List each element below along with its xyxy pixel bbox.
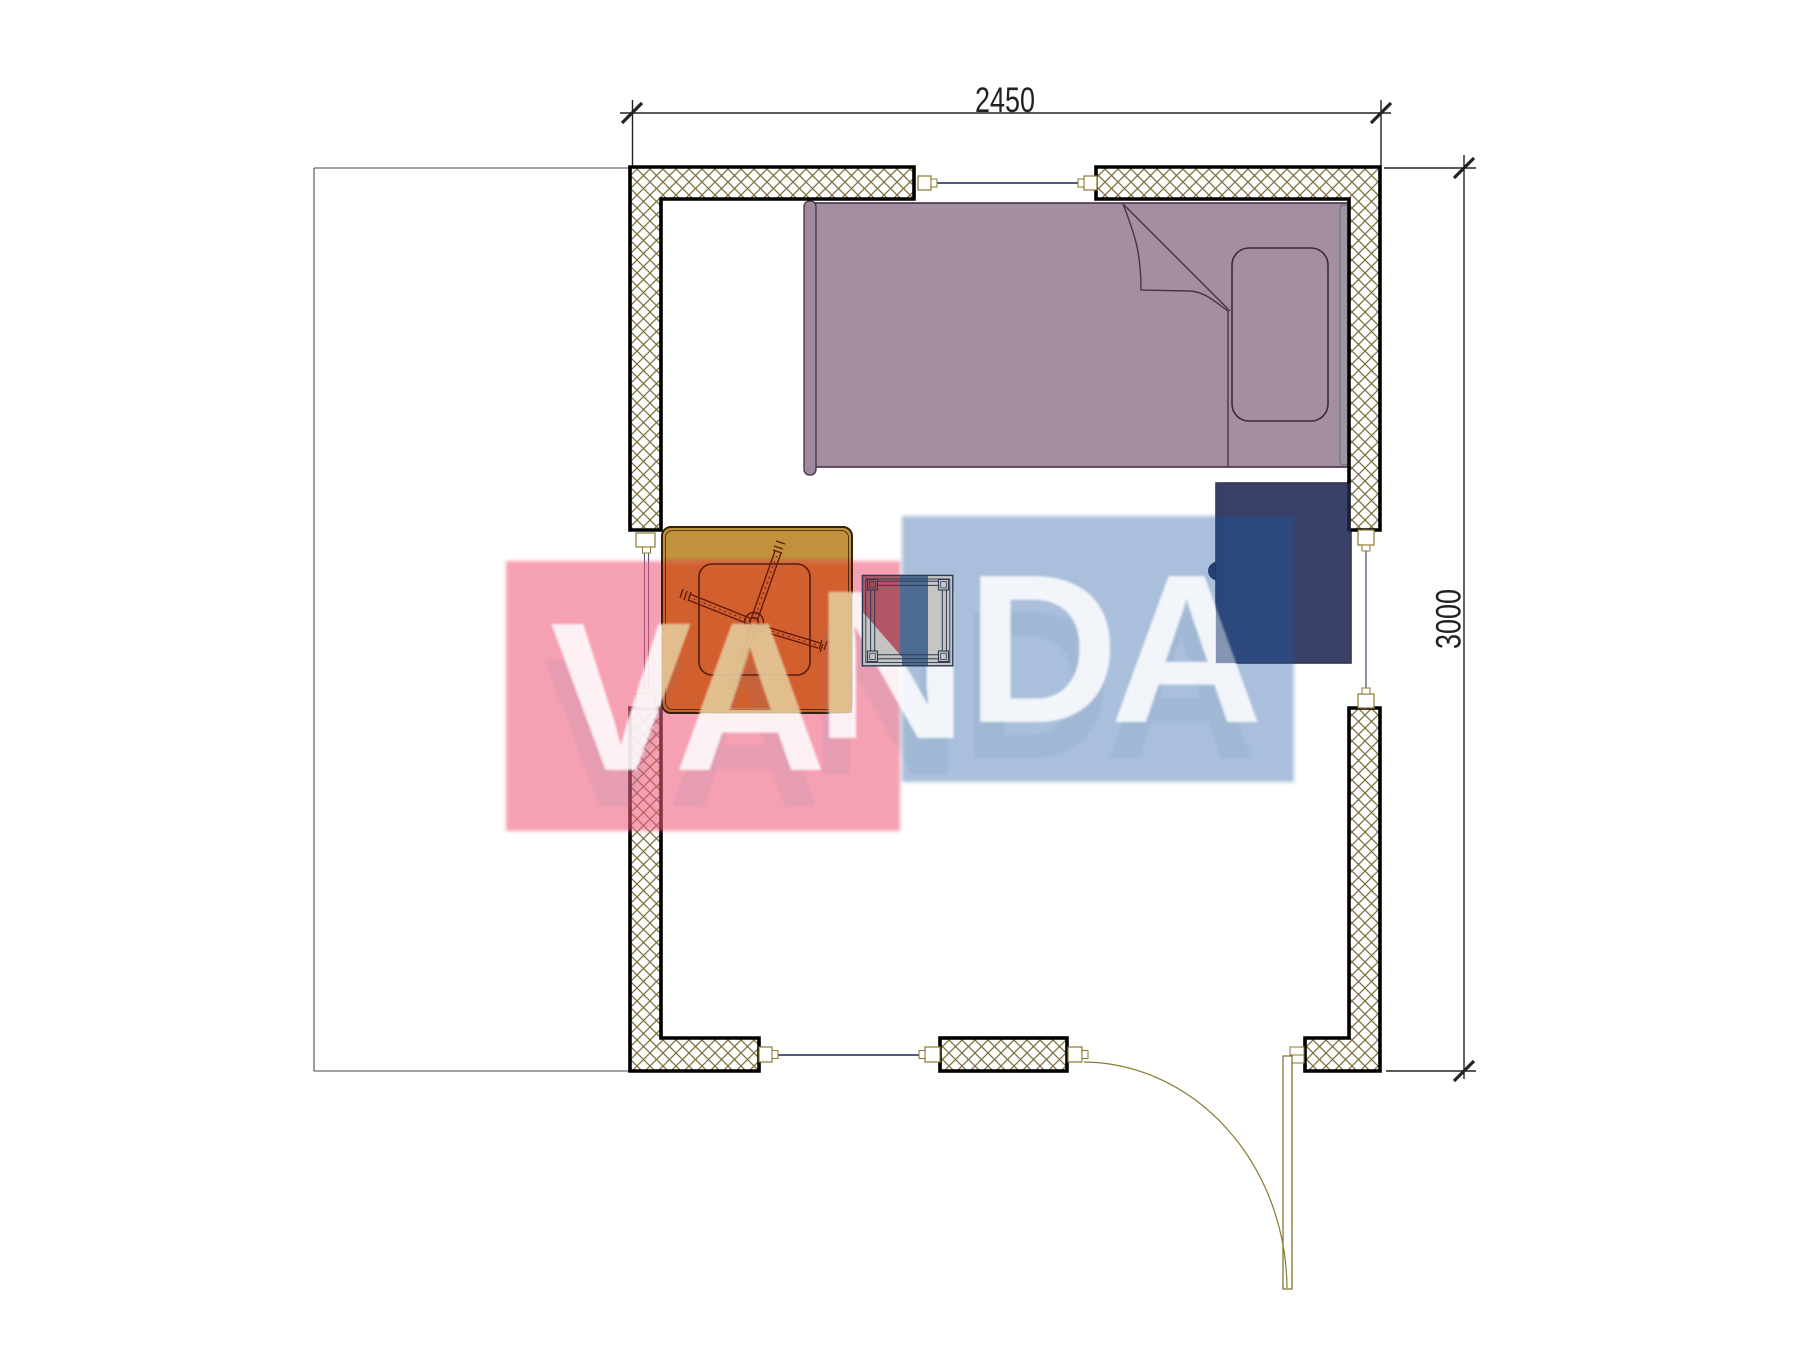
svg-text:2450: 2450 xyxy=(975,81,1035,120)
svg-text:3000: 3000 xyxy=(1430,589,1469,649)
